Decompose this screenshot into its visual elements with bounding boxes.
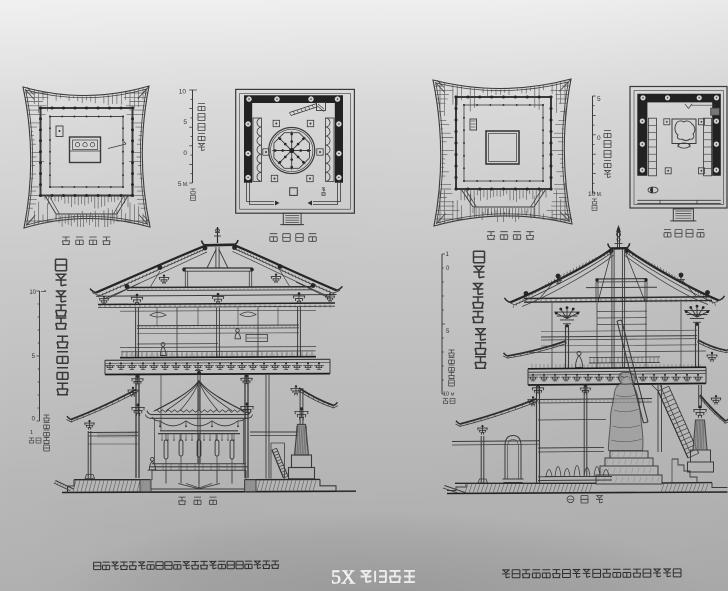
svg-text:10: 10: [179, 89, 187, 96]
svg-text:10: 10: [29, 290, 36, 296]
svg-text:0: 0: [183, 150, 187, 157]
svg-text:5: 5: [597, 96, 601, 103]
svg-text:1: 1: [30, 430, 33, 436]
svg-text:5 M.: 5 M.: [178, 181, 189, 188]
svg-text:10 M.: 10 M.: [588, 191, 602, 198]
svg-text:0: 0: [597, 135, 601, 142]
svg-text:5: 5: [183, 119, 187, 126]
svg-text:5X: 5X: [331, 567, 356, 589]
